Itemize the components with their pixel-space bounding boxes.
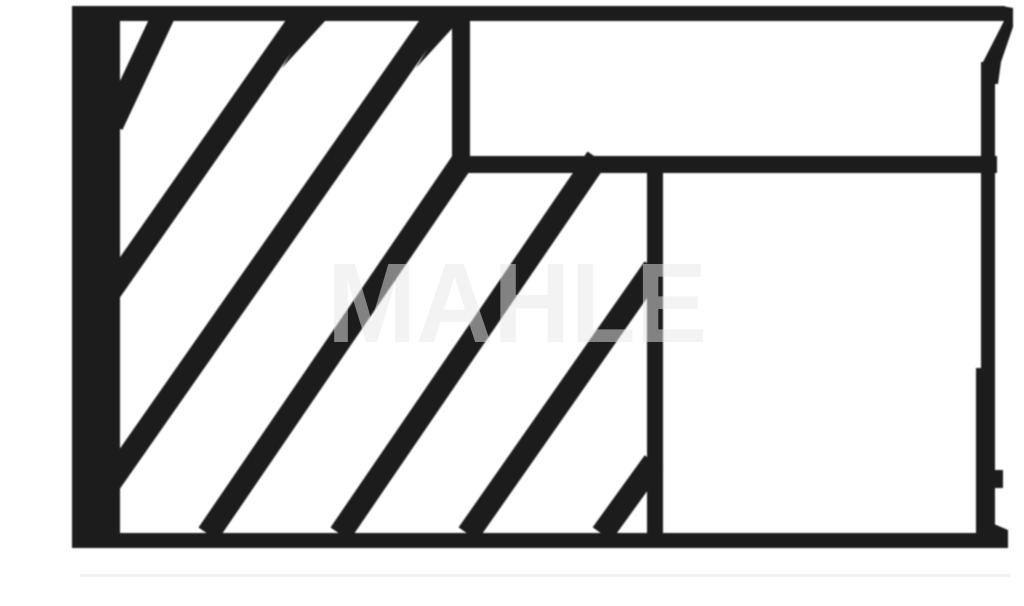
svg-text:MAHLE: MAHLE — [327, 240, 707, 366]
